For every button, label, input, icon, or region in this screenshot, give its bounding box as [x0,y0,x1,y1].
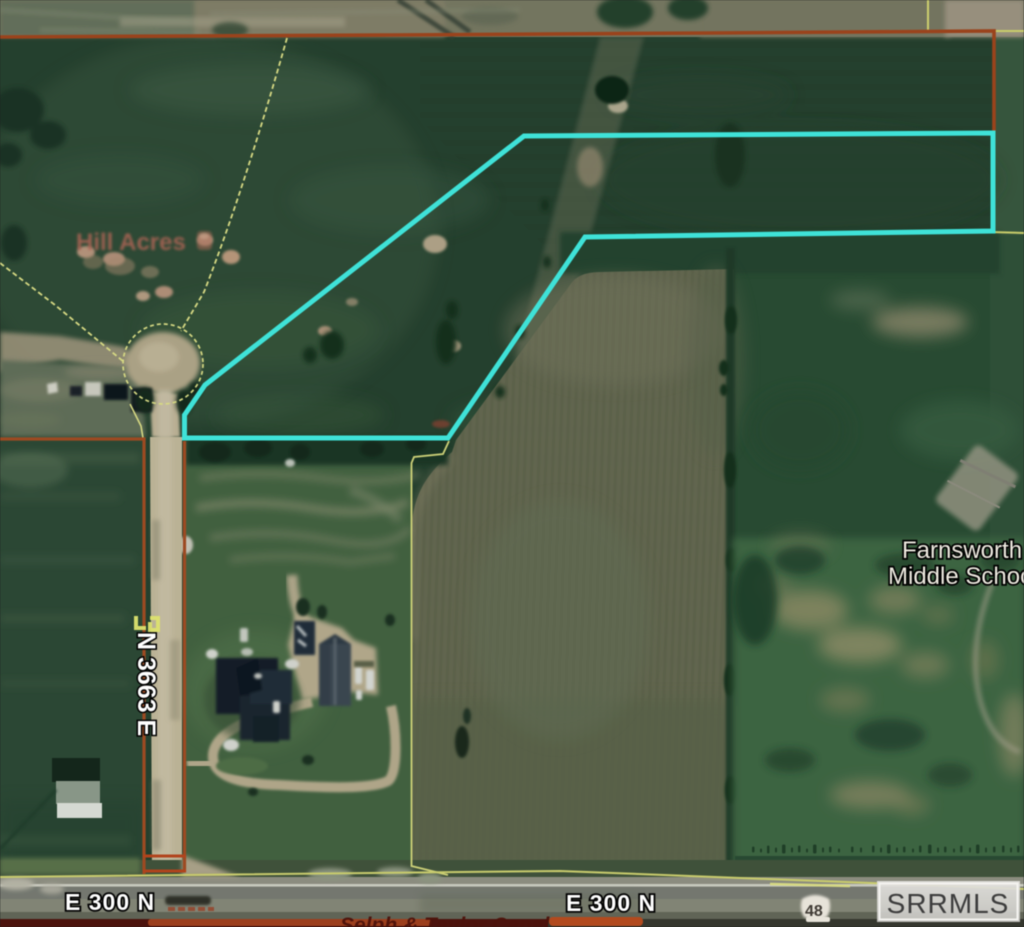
svg-text:SRRMLS: SRRMLS [887,888,1010,919]
svg-text:N 3663 E: N 3663 E [132,632,160,736]
svg-text:E 300 N: E 300 N [566,890,656,916]
svg-text:48: 48 [805,903,823,920]
svg-text:Middle School: Middle School [888,563,1024,590]
svg-text:E 300 N: E 300 N [65,889,155,915]
svg-text:Hill Acres: Hill Acres [76,229,186,256]
svg-text:Selph & Taylor Canal: Selph & Taylor Canal [340,914,550,927]
svg-text:Farnsworth: Farnsworth [902,537,1022,564]
